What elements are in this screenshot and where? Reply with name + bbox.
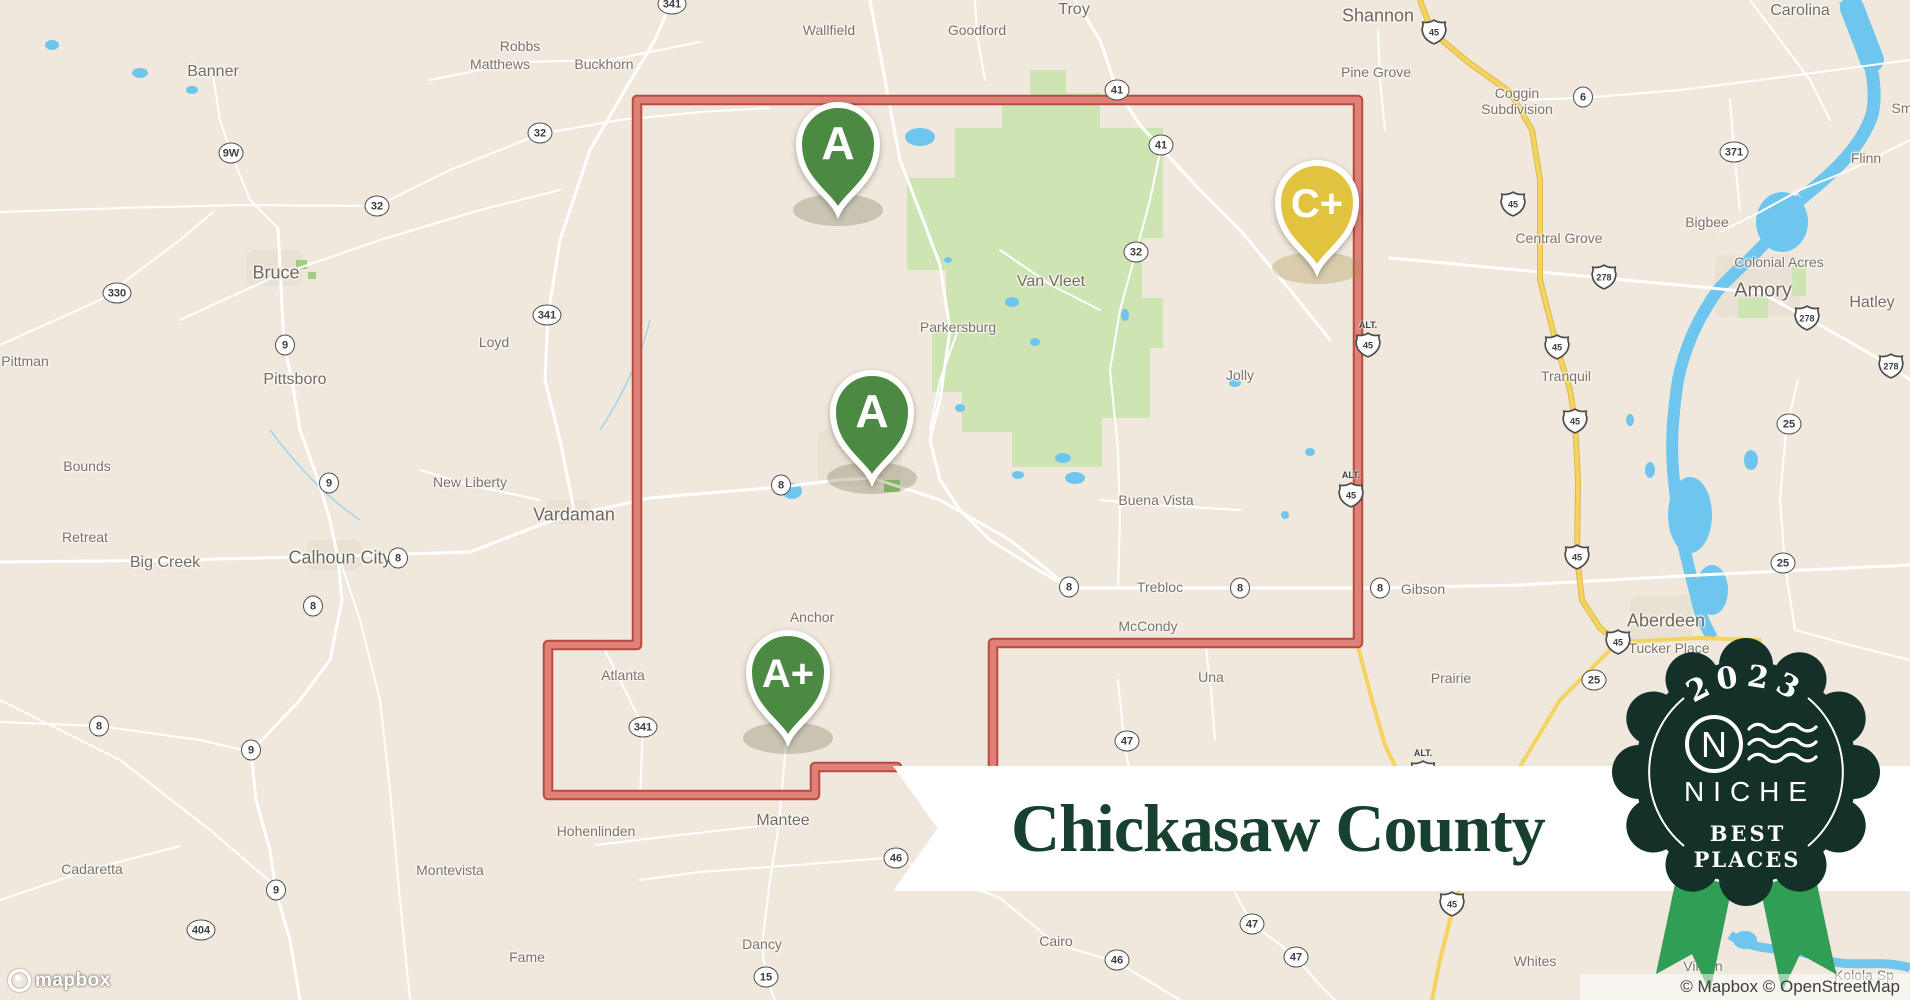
mapbox-logo[interactable]: mapbox (8, 969, 111, 992)
town-label: Troy (1058, 1, 1089, 19)
us-shield-icon: 45 (1542, 333, 1572, 361)
town-label: Prairie (1431, 670, 1471, 686)
us-shield-icon: 278 (1792, 304, 1822, 332)
town-label: Gibson (1401, 581, 1445, 597)
attribution-links[interactable]: © Mapbox © OpenStreetMap (1680, 977, 1900, 997)
town-label: Cadaretta (61, 861, 122, 877)
svg-text:45: 45 (1552, 343, 1562, 353)
route-shield-circle: 47 (1284, 947, 1309, 968)
route-shield-us: 278 (1589, 263, 1619, 291)
route-shield-circle: 9 (275, 335, 295, 356)
grade-marker-a[interactable]: A (824, 368, 920, 493)
town-label: Robbs (500, 38, 540, 54)
route-shield-circle: 32 (1124, 242, 1149, 263)
town-label: Goodford (948, 22, 1006, 38)
us-shield-icon: 45 (1498, 190, 1528, 218)
svg-text:278: 278 (1799, 314, 1814, 324)
map-canvas[interactable]: WallfieldGoodfordTroyShannonCarolinaRobb… (0, 0, 1910, 1000)
niche-best-places-badge: 2023 N NICHE BEST PLACES (1598, 620, 1910, 1000)
route-shield-circle: 32 (528, 123, 553, 144)
town-label: Pittman (1, 353, 48, 369)
town-label: Vardaman (533, 505, 615, 526)
route-shield-circle: 6 (1573, 87, 1593, 108)
town-label: Flinn (1851, 150, 1881, 166)
town-label: Pine Grove (1341, 64, 1411, 80)
town-label: Wallfield (803, 22, 855, 38)
svg-text:45: 45 (1508, 200, 1518, 210)
town-label: New Liberty (433, 474, 507, 490)
route-shield-circle: 8 (1059, 577, 1079, 598)
map-attribution: © Mapbox © OpenStreetMap (1580, 974, 1910, 1000)
town-label: Matthews (470, 56, 530, 72)
route-shield-us: 45 (1498, 190, 1528, 218)
town-label: Big Creek (130, 554, 200, 572)
town-label: Parkersburg (920, 319, 996, 335)
town-label: Una (1198, 669, 1224, 685)
route-shield-circle: 47 (1240, 914, 1265, 935)
town-label: Buckhorn (574, 56, 633, 72)
badge-tagline-line1: BEST (1710, 821, 1787, 846)
town-label: Montevista (416, 862, 484, 878)
route-shield-circle: 32 (365, 196, 390, 217)
route-shield-us: 45 (1560, 407, 1590, 435)
town-label: Shannon (1342, 6, 1414, 27)
us-shield-icon: 45 (1353, 331, 1383, 359)
us-shield-icon: 45 (1562, 543, 1592, 571)
town-label: Sm (1892, 100, 1910, 116)
town-label: Atlanta (601, 667, 645, 683)
route-shield-us: 45 (1437, 890, 1467, 918)
route-shield-circle: 9 (266, 880, 286, 901)
town-label: Bounds (63, 458, 110, 474)
svg-text:45: 45 (1572, 553, 1582, 563)
town-label: Hohenlinden (557, 823, 636, 839)
svg-text:45: 45 (1570, 417, 1580, 427)
town-label: Tranquil (1541, 368, 1591, 384)
us-shield-icon: 45 (1437, 890, 1467, 918)
town-label: Bigbee (1685, 214, 1729, 230)
town-label: CogginSubdivision (1481, 85, 1553, 117)
town-label: Colonial Acres (1734, 254, 1824, 270)
town-label: Buena Vista (1118, 492, 1193, 508)
svg-text:45: 45 (1363, 341, 1373, 351)
town-label: Dancy (742, 936, 782, 952)
route-shield-circle: 41 (1149, 135, 1174, 156)
town-label: Van Vleet (1017, 273, 1085, 291)
route-shield-circle: 41 (1105, 80, 1130, 101)
town-label: Hatley (1849, 294, 1894, 312)
town-label: Anchor (790, 609, 834, 625)
route-shield-circle: 8 (89, 716, 109, 737)
route-shield-circle: 8 (771, 475, 791, 496)
route-shield-circle: 341 (629, 717, 658, 738)
us-shield-icon: 278 (1876, 352, 1906, 380)
town-label: Loyd (479, 334, 509, 350)
county-banner-title: Chickasaw County (1011, 789, 1545, 868)
badge-brand: NICHE (1684, 776, 1816, 807)
us-shield-icon: 45 (1336, 481, 1366, 509)
route-shield-circle: 341 (533, 305, 562, 326)
route-shield-us: 45 (1419, 18, 1449, 46)
town-label: Trebloc (1137, 579, 1183, 595)
town-label: Calhoun City (288, 548, 391, 569)
route-shield-circle: 46 (1105, 950, 1130, 971)
town-label: Pittsboro (263, 371, 326, 389)
svg-text:45: 45 (1429, 28, 1439, 38)
route-shield-circle: 8 (388, 548, 408, 569)
us-shield-icon: 278 (1589, 263, 1619, 291)
niche-n-logo-letter: N (1701, 724, 1727, 765)
route-shield-circle: 8 (303, 596, 323, 617)
svg-text:A+: A+ (762, 652, 814, 696)
town-label: Retreat (62, 529, 108, 545)
route-shield-circle: 9 (319, 473, 339, 494)
route-shield-circle: 8 (1230, 578, 1250, 599)
route-shield-circle: 404 (187, 920, 216, 941)
badge-tagline-line2: PLACES (1694, 847, 1801, 872)
town-label: Jolly (1226, 367, 1254, 383)
svg-text:278: 278 (1883, 362, 1898, 372)
svg-text:45: 45 (1346, 491, 1356, 501)
route-shield-us: 278 (1792, 304, 1822, 332)
route-shield-circle: 15 (754, 967, 779, 988)
town-label: Whites (1514, 953, 1557, 969)
svg-text:C+: C+ (1291, 182, 1343, 226)
route-shield-circle: 330 (103, 283, 132, 304)
route-shield-circle: 371 (1720, 142, 1749, 163)
town-label: Banner (187, 63, 239, 81)
route-shield-circle: 8 (1370, 578, 1390, 599)
town-label: Mantee (756, 812, 809, 830)
town-label: Amory (1734, 280, 1792, 303)
route-shield-us: 278 (1876, 352, 1906, 380)
route-shield-circle: 25 (1777, 414, 1802, 435)
grade-marker-cplus[interactable]: C+ (1269, 158, 1365, 283)
mapbox-logo-word: mapbox (35, 970, 111, 992)
route-shield-circle: 25 (1771, 553, 1796, 574)
town-label: Bruce (252, 263, 299, 284)
route-shield-us-alt: ALT.45 (1336, 471, 1366, 509)
svg-text:A: A (855, 385, 888, 437)
svg-text:A: A (821, 117, 854, 169)
route-shield-circle: 9 (241, 740, 261, 761)
route-shield-us: 45 (1562, 543, 1592, 571)
grade-marker-a[interactable]: A (790, 100, 886, 225)
route-shield-circle: 46 (884, 848, 909, 869)
route-shield-circle: 9W (219, 143, 244, 164)
town-label: Fame (509, 949, 545, 965)
town-label: Cairo (1039, 933, 1072, 949)
route-shield-us-alt: ALT.45 (1353, 321, 1383, 359)
route-shield-us: 45 (1542, 333, 1572, 361)
route-shield-circle: 47 (1115, 731, 1140, 752)
svg-text:278: 278 (1596, 273, 1611, 283)
us-shield-icon: 45 (1560, 407, 1590, 435)
grade-marker-aplus[interactable]: A+ (740, 628, 836, 753)
town-label: McCondy (1118, 618, 1177, 634)
svg-text:45: 45 (1447, 900, 1457, 910)
town-label: Central Grove (1515, 230, 1602, 246)
town-label: Carolina (1770, 2, 1830, 20)
mapbox-logo-icon (8, 969, 31, 992)
us-shield-icon: 45 (1419, 18, 1449, 46)
